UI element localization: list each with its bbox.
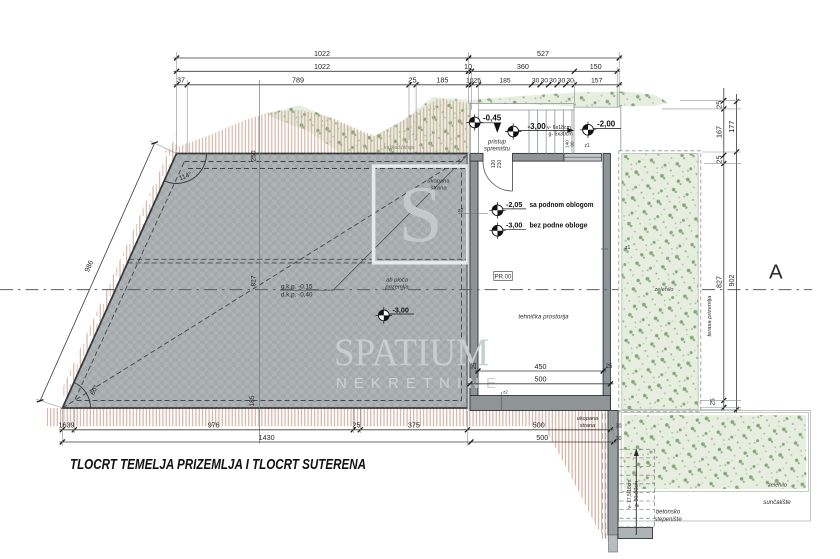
svg-text:zelenilo: zelenilo xyxy=(767,483,787,489)
svg-text:betonsko: betonsko xyxy=(656,510,681,516)
svg-text:25: 25 xyxy=(714,156,723,164)
svg-text:-3,00: -3,00 xyxy=(506,221,522,230)
svg-text:30: 30 xyxy=(566,78,574,85)
svg-text:g- 30x30cm: g- 30x30cm xyxy=(634,481,640,507)
svg-text:-2,00: -2,00 xyxy=(597,120,616,129)
svg-text:10: 10 xyxy=(464,62,472,71)
svg-text:902: 902 xyxy=(727,275,736,287)
svg-text:z1: z1 xyxy=(625,245,631,251)
svg-text:pristup: pristup xyxy=(487,140,507,146)
svg-text:TLOCRT TEMELJA PRIZEMLJA I TLO: TLOCRT TEMELJA PRIZEMLJA I TLOCRT SUTERE… xyxy=(70,457,366,473)
svg-text:-3,00: -3,00 xyxy=(393,305,409,314)
svg-text:spremištu: spremištu xyxy=(484,147,511,153)
svg-text:20: 20 xyxy=(616,436,622,442)
svg-text:stepenište: stepenište xyxy=(654,517,682,523)
svg-text:157: 157 xyxy=(591,78,603,85)
svg-text:s̈trana: s̈trana xyxy=(430,186,447,192)
svg-text:bez podne obloge: bez podne obloge xyxy=(530,223,588,230)
svg-text:30: 30 xyxy=(558,78,566,85)
svg-text:177: 177 xyxy=(727,121,736,133)
svg-text:1639: 1639 xyxy=(59,421,75,430)
svg-text:360: 360 xyxy=(517,62,529,71)
svg-text:500: 500 xyxy=(535,375,547,384)
svg-text:tehnička prostorija: tehnička prostorija xyxy=(518,314,569,321)
svg-text:37: 37 xyxy=(177,76,185,85)
svg-text:450: 450 xyxy=(535,362,547,371)
svg-text:terasa prizemlja: terasa prizemlja xyxy=(707,295,713,337)
svg-text:z1: z1 xyxy=(585,143,591,149)
svg-text:185: 185 xyxy=(499,78,511,85)
svg-text:827: 827 xyxy=(251,275,258,286)
svg-text:A: A xyxy=(769,261,783,284)
svg-text:1025: 1025 xyxy=(466,78,481,85)
svg-text:250: 250 xyxy=(251,150,258,161)
svg-text:25: 25 xyxy=(353,421,361,430)
svg-text:150: 150 xyxy=(590,62,602,71)
svg-text:sa podnom oblogom: sa podnom oblogom xyxy=(530,202,594,209)
svg-text:kaškad blinga: kaškad blinga xyxy=(384,145,415,151)
svg-text:d.k.p. -0,40: d.k.p. -0,40 xyxy=(281,291,313,298)
svg-text:sunčalište: sunčalište xyxy=(763,499,791,506)
svg-text:g- 5x30cm: g- 5x30cm xyxy=(549,132,573,138)
svg-text:g.k.p. -0.15: g.k.p. -0.15 xyxy=(281,283,313,290)
svg-text:976: 976 xyxy=(208,421,220,430)
svg-text:1022: 1022 xyxy=(314,62,330,71)
svg-text:v- 6x18cm: v- 6x18cm xyxy=(547,125,571,131)
svg-text:375: 375 xyxy=(408,421,420,430)
svg-text:30: 30 xyxy=(549,78,557,85)
svg-text:500: 500 xyxy=(536,433,548,442)
svg-text:20: 20 xyxy=(616,424,622,430)
svg-text:zelenilo: zelenilo xyxy=(654,287,674,293)
svg-text:167: 167 xyxy=(714,126,723,138)
svg-text:210: 210 xyxy=(497,160,503,169)
svg-text:185: 185 xyxy=(436,76,448,85)
svg-text:185: 185 xyxy=(249,395,256,406)
svg-text:25: 25 xyxy=(409,76,417,85)
svg-text:789: 789 xyxy=(292,76,304,85)
svg-text:25: 25 xyxy=(714,101,723,109)
svg-text:strana: strana xyxy=(580,423,596,429)
svg-text:1022: 1022 xyxy=(314,49,330,58)
svg-text:ab ploča: ab ploča xyxy=(386,278,409,284)
svg-text:25: 25 xyxy=(472,362,478,369)
svg-text:z2: z2 xyxy=(503,390,508,395)
svg-text:-3,00: -3,00 xyxy=(528,122,547,131)
svg-text:v- 17,5/18cm: v- 17,5/18cm xyxy=(627,480,633,509)
svg-text:1430: 1430 xyxy=(259,433,275,442)
svg-text:SPATIUM: SPATIUM xyxy=(334,330,489,374)
svg-text:25: 25 xyxy=(606,364,613,370)
svg-text:ukopana: ukopana xyxy=(427,179,450,185)
svg-text:30: 30 xyxy=(532,78,540,85)
svg-text:25: 25 xyxy=(710,398,717,406)
svg-text:527: 527 xyxy=(537,49,549,58)
svg-text:PR.00: PR.00 xyxy=(495,275,512,281)
svg-text:80: 80 xyxy=(570,141,575,147)
svg-text:prizemlja: prizemlja xyxy=(384,284,409,290)
svg-text:500: 500 xyxy=(533,421,545,430)
svg-text:-0,45: -0,45 xyxy=(483,114,502,123)
svg-text:z2: z2 xyxy=(458,208,464,214)
svg-text:827: 827 xyxy=(714,276,723,288)
svg-text:30: 30 xyxy=(541,78,549,85)
svg-text:-2,05: -2,05 xyxy=(506,200,522,209)
svg-text:ukopana: ukopana xyxy=(577,416,598,422)
